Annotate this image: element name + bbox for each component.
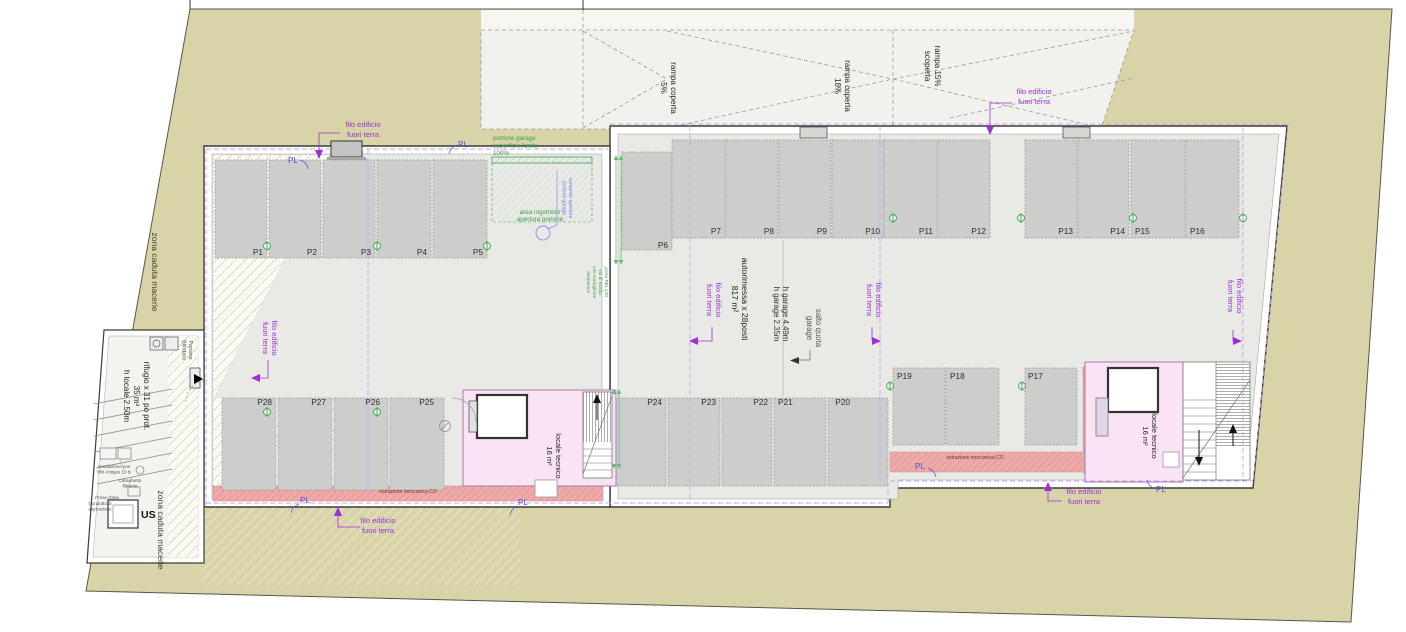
air-intake-label: Prese d'aria bbox=[95, 495, 119, 500]
stall-label-P6: P6 bbox=[658, 240, 669, 250]
filo-edificio-bottom-right: filo edificiofuori terra bbox=[1066, 487, 1101, 506]
armored-door-label: PortoneBlindato bbox=[181, 340, 194, 360]
stall-P6 bbox=[622, 152, 672, 250]
filo-edificio-top-right: filo edificiofuori terra bbox=[1016, 87, 1051, 106]
filo-edificio-bottom-left: filo edificio bbox=[360, 516, 395, 525]
stall-label-P26: P26 bbox=[365, 397, 380, 407]
garage-height-label: h garage 4.49m bbox=[781, 287, 790, 342]
stall-label-P12: P12 bbox=[971, 226, 986, 236]
filter-box-label: Cassonetto bbox=[119, 478, 142, 483]
door-clearance-label: apertura portone bbox=[517, 216, 564, 223]
garage-area-label: autorimessa x 28posti bbox=[740, 258, 750, 341]
us-shaft bbox=[108, 500, 138, 528]
salto-quota-label: salto quota bbox=[814, 309, 823, 348]
ramp-label-open-15: rampa 15% bbox=[933, 46, 942, 87]
filo-edificio-center-right: filo edificio bbox=[874, 282, 883, 317]
ramp-label-open-15: scoperta bbox=[923, 51, 932, 82]
stall-P13 bbox=[1025, 140, 1077, 238]
stall-label-P20: P20 bbox=[835, 397, 850, 407]
refuge-label: rifugio x 31 po prot. bbox=[142, 362, 151, 430]
ramp-label-covered-5: rampa coperta bbox=[669, 62, 678, 114]
ramp-label-open-15: rampa 15%scoperta bbox=[923, 46, 942, 87]
stall-label-P27: P27 bbox=[311, 397, 326, 407]
wall-vent-1 bbox=[800, 127, 827, 138]
stall-label-P4: P4 bbox=[417, 247, 428, 257]
stall-P14 bbox=[1078, 140, 1129, 238]
stall-label-P16: P16 bbox=[1190, 226, 1205, 236]
filo-edificio-left: filo edificiofuori terra bbox=[261, 320, 279, 355]
stall-label-P22: P22 bbox=[753, 397, 768, 407]
debris-zone-label-top: zona caduta macerie bbox=[150, 233, 160, 312]
refuge-fixture-2 bbox=[165, 337, 178, 350]
filter-box bbox=[100, 448, 116, 459]
filo-edificio-top-right: filo edificio bbox=[1016, 87, 1051, 96]
filo-edificio-left: filo edificio bbox=[270, 320, 279, 355]
stall-P15 bbox=[1131, 140, 1185, 238]
ventilation-label: filtri Antigas 19 B bbox=[97, 470, 131, 475]
tech-room-right-label: 16 m² bbox=[1141, 426, 1150, 446]
stall-P10 bbox=[832, 140, 884, 238]
filo-edificio-center-right: filo edificiofuori terra bbox=[865, 282, 883, 317]
stall-P7 bbox=[672, 140, 725, 238]
garage-area-label: 817 m² bbox=[730, 286, 740, 313]
filo-edificio-left: fuori terra bbox=[261, 322, 270, 355]
garage-door-label: 100% bbox=[493, 150, 510, 157]
us-label: US bbox=[141, 509, 156, 521]
pl-marker-1: PL bbox=[288, 156, 298, 165]
ramp-label-covered-18: rampa coperta bbox=[843, 60, 852, 112]
pl-marker-2: PL bbox=[458, 140, 468, 149]
stall-label-P23: P23 bbox=[701, 397, 716, 407]
tech-room-left-label: 16 m² bbox=[545, 446, 554, 466]
stall-label-P9: P9 bbox=[817, 226, 828, 236]
armored-door-label: Blindato bbox=[181, 340, 187, 360]
stairs-right bbox=[1183, 362, 1250, 480]
ramp-label-covered-18: 18% bbox=[833, 78, 842, 94]
stall-label-P13: P13 bbox=[1058, 226, 1073, 236]
garage-height-label: h garage 4.49mh garage 2.35m bbox=[772, 287, 790, 342]
tech-room-left-label: locale tecnico bbox=[554, 433, 563, 478]
stall-label-P11: P11 bbox=[919, 226, 934, 236]
co-extraction-label-left: estrazione meccanica CO bbox=[379, 489, 436, 495]
stall-label-P15: P15 bbox=[1135, 226, 1150, 236]
filo-edificio-center-left: filo edificio bbox=[714, 282, 723, 317]
stall-label-P28: P28 bbox=[257, 397, 272, 407]
stall-P5 bbox=[433, 160, 487, 258]
tech-door-right bbox=[1163, 452, 1179, 467]
garage-height-label: h garage 2.35m bbox=[772, 287, 781, 342]
fire-door-note: antipanico bbox=[585, 271, 591, 293]
stall-label-P5: P5 bbox=[473, 247, 484, 257]
filter-box-label: filtrante bbox=[123, 484, 138, 489]
stall-P22 bbox=[722, 398, 772, 486]
door-control-label: comando aperturaportone garage bbox=[561, 178, 574, 219]
elevator-left bbox=[477, 395, 527, 438]
ramp-top-strip bbox=[481, 10, 1134, 30]
stall-P4 bbox=[377, 160, 431, 258]
stall-label-P18: P18 bbox=[950, 371, 965, 381]
filo-edificio-bottom-left: fuori terra bbox=[362, 526, 395, 535]
ventilation-label: Ventilazione con bbox=[98, 464, 131, 469]
stall-P23 bbox=[668, 398, 720, 486]
filo-edificio-center-left: filo edificiofuori terra bbox=[705, 282, 723, 317]
door-control-label: portone garage bbox=[561, 181, 567, 215]
refuge-label: 35 m² bbox=[132, 386, 141, 407]
salto-quota-label: garage bbox=[805, 316, 814, 340]
floor-plan-page: rampa coperta5%rampa coperta18%rampa 15%… bbox=[0, 0, 1406, 632]
stall-label-P14: P14 bbox=[1110, 226, 1125, 236]
suction-duct-label: Condotto diaspirazione bbox=[88, 501, 112, 512]
stall-label-P1: P1 bbox=[253, 247, 264, 257]
fire-door-note: porta REI 120 bbox=[603, 267, 609, 297]
garage-door-label: superficie forata bbox=[493, 143, 538, 150]
stall-P3 bbox=[323, 160, 375, 258]
stall-P24 bbox=[614, 398, 666, 486]
stairs-left bbox=[583, 392, 612, 478]
pl-marker-6: PL bbox=[1156, 485, 1166, 494]
filo-edificio-right: filo edificio bbox=[1235, 278, 1244, 313]
stall-label-P7: P7 bbox=[711, 226, 722, 236]
stall-P11 bbox=[884, 140, 937, 238]
elevator-left-shaft bbox=[469, 401, 477, 432]
stall-label-P10: P10 bbox=[865, 226, 880, 236]
door-clearance-label: area ingombro bbox=[520, 209, 561, 216]
ventilation-label: Ventilazione confiltri Antigas 19 B bbox=[97, 464, 131, 475]
debris-zone-label-bottom: zona caduta macerie bbox=[156, 491, 166, 570]
elevator-right bbox=[1108, 368, 1158, 412]
door-control-label: comando apertura bbox=[567, 178, 573, 219]
stall-P12 bbox=[938, 140, 990, 238]
stall-P16 bbox=[1186, 140, 1239, 238]
stall-label-P19: P19 bbox=[897, 371, 912, 381]
stall-P2 bbox=[269, 160, 321, 258]
filo-edificio-top-left: fuori terra bbox=[347, 130, 380, 139]
pl-marker-4: PL bbox=[518, 498, 528, 507]
stall-P21 bbox=[774, 398, 826, 486]
stall-label-P25: P25 bbox=[419, 397, 434, 407]
stall-P25 bbox=[390, 398, 444, 490]
elevator-right-shaft bbox=[1096, 398, 1108, 436]
stall-P27 bbox=[278, 398, 332, 490]
filo-edificio-bottom-left: filo edificiofuori terra bbox=[360, 516, 395, 535]
pl-marker-3: PL bbox=[300, 496, 310, 505]
ramp-label-covered-5: 5% bbox=[659, 82, 668, 94]
filo-edificio-top-left: filo edificio bbox=[345, 120, 380, 129]
pl-marker-5: PL bbox=[915, 462, 925, 471]
tech-room-right-label: locale tecnico bbox=[1150, 413, 1159, 458]
filo-edificio-center-right: fuori terra bbox=[865, 284, 874, 317]
stall-P8 bbox=[726, 140, 778, 238]
stall-label-P24: P24 bbox=[647, 397, 662, 407]
stall-P20 bbox=[828, 398, 888, 486]
filo-edificio-bottom-right: fuori terra bbox=[1068, 497, 1101, 506]
stall-P9 bbox=[779, 140, 831, 238]
door-clearance-label: area ingombroapertura portone bbox=[517, 209, 564, 223]
ramp-zone bbox=[481, 30, 1134, 129]
garage-door-label: portone garage bbox=[493, 135, 536, 142]
filo-edificio-right: fuori terra bbox=[1226, 280, 1235, 313]
garage-door-green bbox=[492, 157, 592, 163]
wall-vent-2 bbox=[1063, 127, 1090, 138]
stall-P1 bbox=[215, 160, 267, 258]
refuge-fixture-1 bbox=[150, 337, 163, 350]
filo-edificio-right: filo edificiofuori terra bbox=[1226, 278, 1244, 313]
filter-box-2 bbox=[118, 448, 131, 459]
tech-door-left bbox=[535, 480, 557, 497]
stall-label-P21: P21 bbox=[778, 397, 793, 407]
stall-label-P8: P8 bbox=[764, 226, 775, 236]
fire-door-note: via di esodo bbox=[597, 269, 603, 295]
suction-duct-label: Condotto di bbox=[88, 501, 111, 506]
filo-edificio-bottom-right: filo edificio bbox=[1066, 487, 1101, 496]
stall-label-P17: P17 bbox=[1028, 371, 1043, 381]
co-extraction-label-right: estrazione meccanica CO bbox=[946, 455, 1003, 461]
suction-duct-label: aspirazione bbox=[88, 507, 112, 512]
filo-edificio-top-left: filo edificiofuori terra bbox=[345, 120, 380, 139]
filo-edificio-center-left: fuori terra bbox=[705, 284, 714, 317]
stall-label-P2: P2 bbox=[307, 247, 318, 257]
floor-plan-canvas: rampa coperta5%rampa coperta18%rampa 15%… bbox=[0, 0, 1406, 632]
armored-door-label: Portone bbox=[187, 340, 193, 359]
stall-label-P3: P3 bbox=[361, 247, 372, 257]
refuge-label: h locale 2.50m bbox=[122, 370, 131, 422]
fire-door-note: con maniglione bbox=[591, 266, 597, 299]
filo-edificio-top-right: fuori terra bbox=[1018, 97, 1051, 106]
